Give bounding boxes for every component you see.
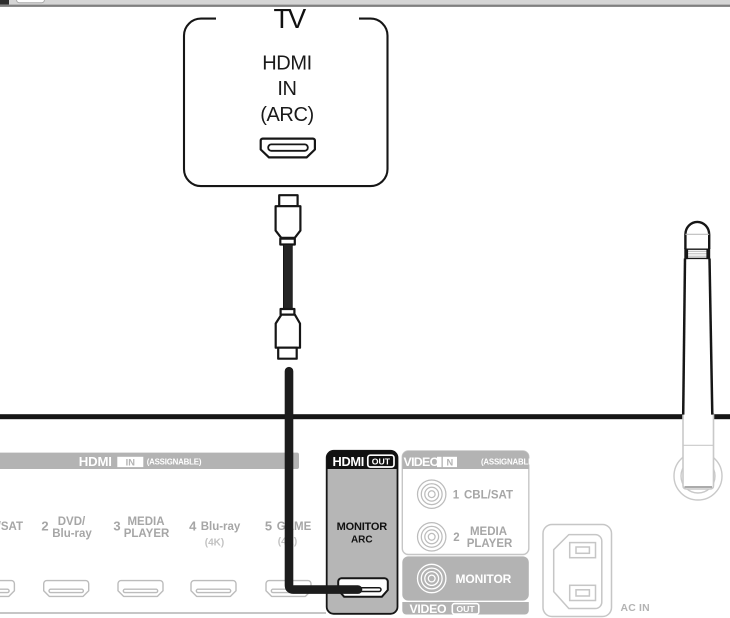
- svg-text:VIDEO: VIDEO: [404, 455, 440, 469]
- svg-text:2: 2: [41, 519, 48, 534]
- svg-text:Blu-ray: Blu-ray: [201, 521, 241, 533]
- svg-text:ARC: ARC: [351, 534, 373, 545]
- svg-text:3: 3: [113, 519, 120, 534]
- svg-text:HDMI: HDMI: [79, 454, 112, 469]
- svg-text:PLAYER: PLAYER: [124, 528, 170, 540]
- svg-text:OUT: OUT: [372, 457, 391, 467]
- svg-text:VIDEO: VIDEO: [410, 602, 448, 616]
- svg-text:1: 1: [453, 490, 460, 502]
- svg-text:(ASSIGNABLE): (ASSIGNABLE): [481, 457, 536, 466]
- svg-text:Blu-ray: Blu-ray: [52, 528, 92, 540]
- svg-text:IN: IN: [277, 78, 296, 100]
- svg-text:2: 2: [453, 532, 459, 544]
- svg-text:(4K): (4K): [205, 538, 224, 549]
- svg-text:CBL/SAT: CBL/SAT: [0, 521, 23, 533]
- svg-text:CBL/SAT: CBL/SAT: [464, 490, 513, 502]
- svg-text:AC IN: AC IN: [621, 603, 650, 614]
- svg-text:IN: IN: [126, 457, 136, 467]
- svg-text:GAME: GAME: [277, 521, 312, 533]
- svg-text:MONITOR: MONITOR: [456, 572, 512, 586]
- svg-text:MONITOR: MONITOR: [337, 521, 388, 533]
- svg-text:TV: TV: [274, 3, 307, 34]
- svg-text:(ARC): (ARC): [260, 104, 314, 126]
- svg-text:HDMI: HDMI: [262, 53, 312, 75]
- svg-text:N: N: [447, 457, 454, 467]
- svg-text:4: 4: [189, 519, 197, 534]
- svg-text:HDMI: HDMI: [333, 454, 365, 469]
- svg-text:MEDIA: MEDIA: [470, 526, 507, 538]
- svg-text:5: 5: [265, 519, 272, 534]
- svg-text:MEDIA: MEDIA: [127, 516, 164, 528]
- svg-text:OUT: OUT: [456, 604, 475, 614]
- svg-text:(ASSIGNABLE): (ASSIGNABLE): [147, 457, 202, 466]
- svg-text:DVD/: DVD/: [58, 516, 86, 528]
- svg-text:PLAYER: PLAYER: [467, 538, 513, 550]
